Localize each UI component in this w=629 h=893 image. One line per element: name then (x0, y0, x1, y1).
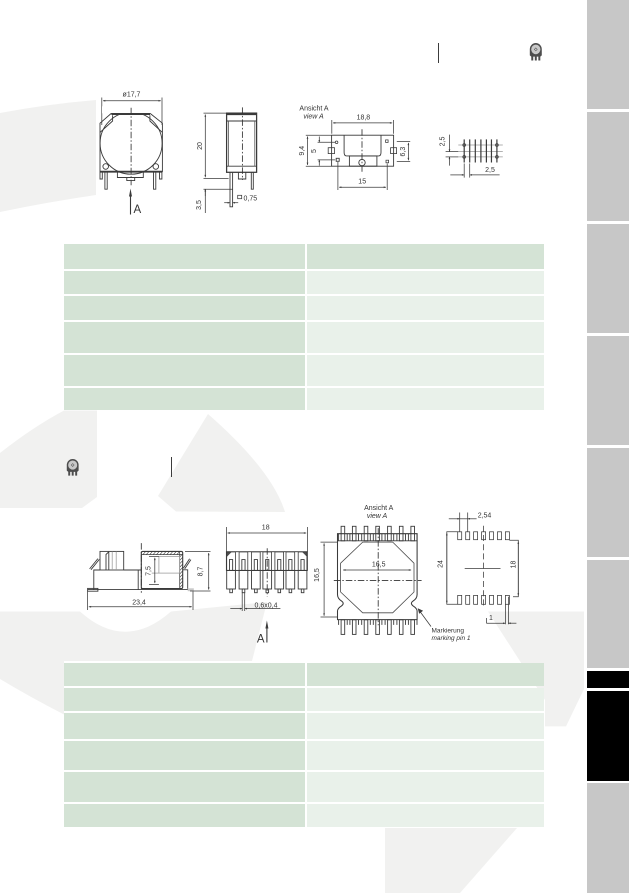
svg-text:A: A (257, 634, 265, 646)
svg-text:view A: view A (367, 513, 388, 520)
svg-text:24: 24 (438, 560, 445, 568)
svg-text:A: A (134, 204, 142, 216)
svg-text:2,5: 2,5 (439, 137, 446, 147)
svg-text:3,5: 3,5 (196, 200, 203, 210)
svg-text:18: 18 (262, 524, 270, 531)
svg-text:Markierung: Markierung (432, 628, 465, 635)
svg-text:16,5: 16,5 (314, 568, 321, 582)
svg-text:1: 1 (489, 615, 493, 622)
svg-text:16,5: 16,5 (372, 562, 386, 569)
svg-text:18: 18 (510, 561, 517, 569)
svg-text:2,54: 2,54 (478, 512, 492, 519)
svg-text:20: 20 (197, 142, 204, 150)
svg-text:5: 5 (311, 149, 318, 153)
svg-text:8,7: 8,7 (197, 567, 204, 577)
svg-text:7,5: 7,5 (146, 566, 153, 576)
svg-text:marking pin 1: marking pin 1 (432, 635, 471, 642)
svg-text:Ansicht A: Ansicht A (364, 505, 394, 512)
svg-text:Ansicht A: Ansicht A (299, 106, 329, 113)
svg-text:view A: view A (303, 113, 324, 120)
svg-text:15: 15 (358, 179, 366, 186)
svg-text:6,3: 6,3 (400, 147, 407, 157)
svg-text:23,4: 23,4 (132, 599, 146, 606)
svg-text:0,75: 0,75 (244, 196, 258, 203)
svg-text:9,4: 9,4 (299, 146, 306, 156)
svg-text:18,8: 18,8 (357, 114, 371, 121)
svg-text:ø17,7: ø17,7 (123, 92, 141, 99)
svg-text:2,5: 2,5 (485, 167, 495, 174)
